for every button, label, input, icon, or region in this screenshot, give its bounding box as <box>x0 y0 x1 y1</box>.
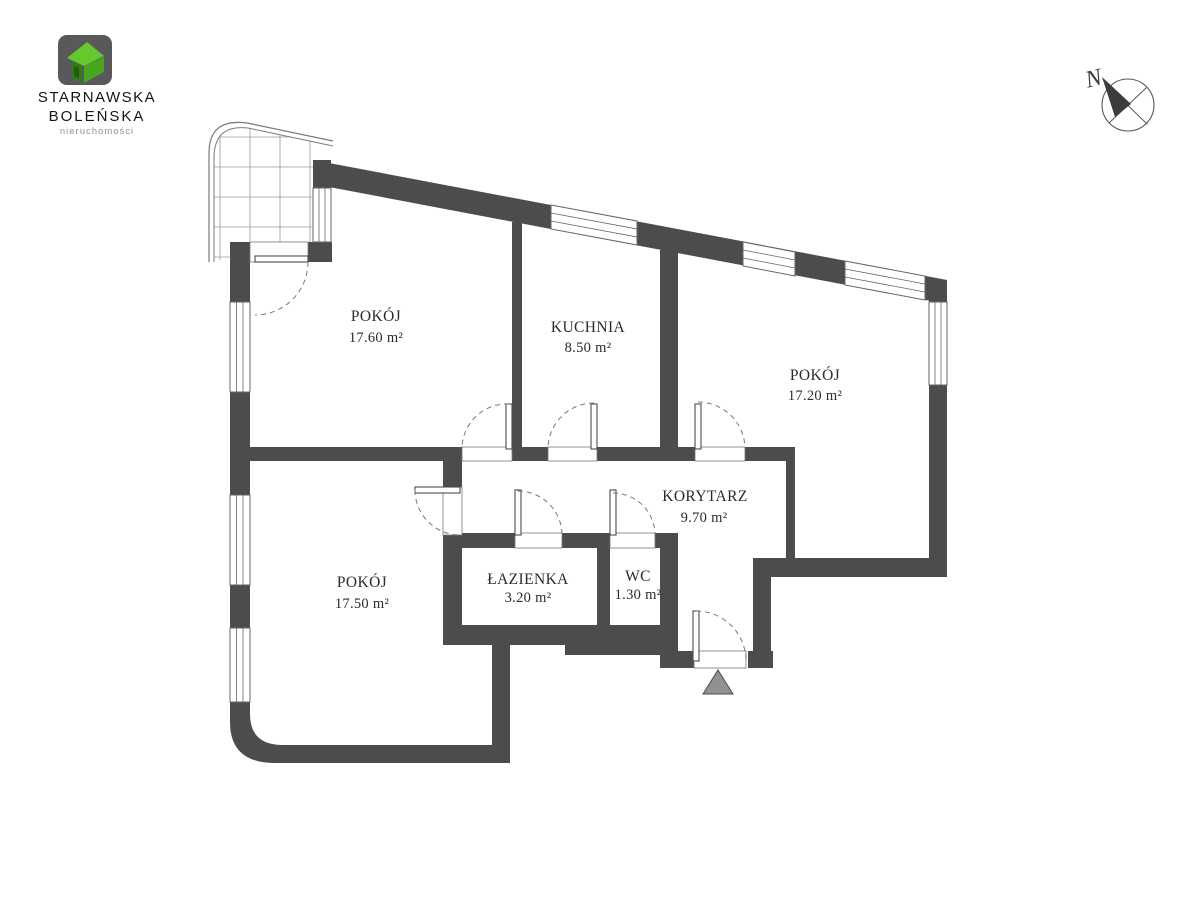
wall-pokoj-right-bottom <box>753 558 947 577</box>
room-name: KUCHNIA <box>551 319 626 336</box>
room-name: KORYTARZ <box>662 488 748 505</box>
wall-left-pier1 <box>230 242 250 302</box>
room-label-wc: WC 1.30 m² <box>615 568 662 603</box>
opening-pokoj-right <box>695 447 745 461</box>
window-left-3 <box>230 628 250 702</box>
room-label-pokoj-top-left: POKÓJ 17.60 m² <box>349 308 404 346</box>
window-slope-pokoj-right-1 <box>743 242 795 276</box>
room-area: 8.50 m² <box>565 340 612 356</box>
floor-plan: STARNAWSKA BOLEŃSKA nieruchomości N <box>0 0 1200 900</box>
window-slope-kuchnia <box>551 205 637 245</box>
room-label-lazienka: ŁAZIENKA 3.20 m² <box>487 571 569 606</box>
balcony-door <box>255 256 308 315</box>
wall-pokoj-left-right <box>443 447 462 642</box>
room-area: 17.60 m² <box>349 330 404 346</box>
opening-kuchnia <box>548 447 597 461</box>
opening-wc <box>610 533 655 548</box>
wall-balcony-bottom-pier <box>308 242 332 262</box>
opening-lazienka <box>515 533 562 548</box>
wall-wc-bottom-step <box>565 625 678 655</box>
wall-kuchnia-left <box>512 222 522 447</box>
logo-text-line1: STARNAWSKA <box>38 89 156 106</box>
wall-kuchnia-right <box>660 250 678 447</box>
room-area: 17.20 m² <box>788 388 843 404</box>
window-left-1 <box>230 302 250 392</box>
room-label-pokoj-bottom-left: POKÓJ 17.50 m² <box>335 574 390 612</box>
window-left-2 <box>230 495 250 585</box>
window-balcony <box>313 188 331 242</box>
north-needle-icon <box>1102 77 1131 117</box>
wall-corridor-right <box>786 447 795 558</box>
pokoj-top-left-door <box>462 404 512 449</box>
wall-left-pier3 <box>230 585 250 628</box>
pokoj-right-door <box>695 402 745 449</box>
logo-text-line3: nieruchomości <box>60 126 134 137</box>
room-label-kuchnia: KUCHNIA 8.50 m² <box>551 319 626 356</box>
entrance-marker-icon <box>703 670 733 694</box>
room-name: POKÓJ <box>351 308 401 325</box>
room-name: POKÓJ <box>337 574 387 591</box>
opening-pokoj-top-left <box>462 447 512 461</box>
room-area: 3.20 m² <box>505 590 552 606</box>
room-name: ŁAZIENKA <box>487 571 569 588</box>
compass-rose: N <box>1082 64 1154 131</box>
room-label-korytarz: KORYTARZ 9.70 m² <box>662 488 748 526</box>
wall-left-pier2 <box>230 392 250 495</box>
wc-door <box>610 490 655 535</box>
wall-bottom-exterior <box>283 745 510 763</box>
agency-logo: STARNAWSKA BOLEŃSKA nieruchomości <box>38 35 156 137</box>
walls <box>230 160 947 763</box>
window-slope-pokoj-right-2 <box>845 261 925 300</box>
floor-plan-page: STARNAWSKA BOLEŃSKA nieruchomości N <box>0 0 1200 900</box>
wall-rounded-corner <box>230 702 283 763</box>
kuchnia-door <box>548 403 597 449</box>
wall-step <box>492 640 510 763</box>
logo-text-line2: BOLEŃSKA <box>49 108 146 125</box>
opening-entrance-threshold <box>694 651 746 668</box>
room-name: WC <box>625 568 651 585</box>
wall-balcony-top-pier <box>313 160 331 188</box>
room-area: 17.50 m² <box>335 596 390 612</box>
room-name: POKÓJ <box>790 367 840 384</box>
room-area: 1.30 m² <box>615 587 662 603</box>
opening-pokoj-bottom-left <box>443 487 462 535</box>
wall-lazienka-wc-partition <box>597 548 610 625</box>
wall-entrance-right <box>748 651 773 668</box>
window-right <box>929 302 947 385</box>
lazienka-door <box>515 490 562 535</box>
room-label-pokoj-right: POKÓJ 17.20 m² <box>788 367 843 404</box>
room-area: 9.70 m² <box>681 510 728 526</box>
